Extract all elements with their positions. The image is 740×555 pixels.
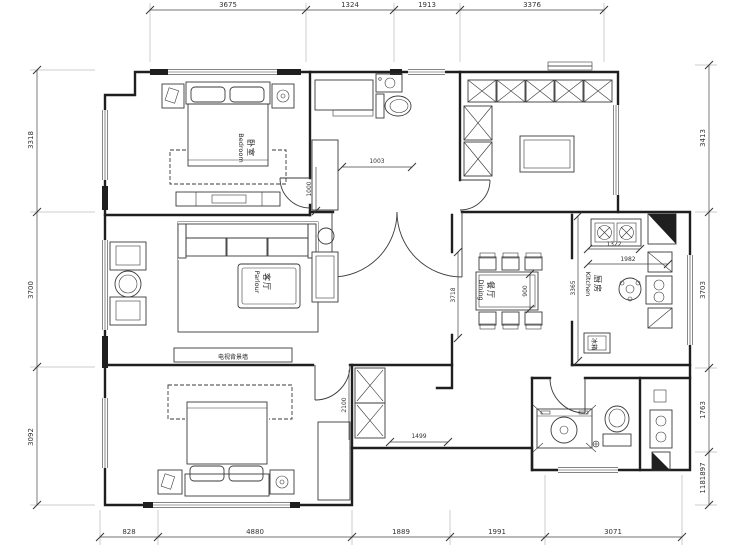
wall-pier (150, 69, 168, 75)
door-arc-topright-room (460, 180, 490, 210)
svg-text:3718: 3718 (450, 287, 457, 302)
tv-wall-label: 电视背景墙 (218, 353, 248, 361)
round-table-icon (115, 271, 141, 297)
armchair-icon (110, 242, 146, 270)
hall-cabinet-icon (355, 368, 385, 438)
dim-bottom-5: 3071 (604, 528, 622, 536)
dining-label: 餐厅 Dining (477, 280, 495, 301)
toilet-icon (603, 406, 631, 446)
svg-text:1982: 1982 (620, 256, 635, 263)
window-foyer-top (408, 68, 445, 76)
dim-table-w: 900 (522, 285, 529, 297)
window-kitchen-right (686, 255, 694, 345)
dim-kitchen-w2: 1982 (584, 256, 672, 268)
dimension-chain-left: 3318 3700 3092 (27, 66, 95, 509)
side-chair-icon (312, 252, 338, 302)
kitchen-label-zh: 厨房 (593, 275, 603, 293)
dimension-chain-bottom: 828 4880 1889 1991 3071 (96, 475, 686, 545)
sink-icon (646, 276, 672, 304)
bedroom-bottom (158, 365, 350, 500)
dim-table: 900 (522, 270, 534, 313)
fridge-label: 冰箱 (590, 338, 598, 350)
dim-right-1: 3413 (699, 129, 707, 147)
svg-text:1322: 1322 (606, 241, 621, 248)
dining-label-en: Dining (477, 280, 485, 301)
living-room: 客厅 Parlour 电视背景墙 (110, 222, 338, 362)
armchair-icon (110, 297, 146, 325)
basin-icon (619, 278, 641, 301)
dining-chairs-top (479, 253, 542, 270)
window-bedroom-top (165, 68, 283, 76)
kitchen: 冰箱 厨房 Kitchen 1322 1982 3365 (570, 212, 676, 365)
wall-pier (143, 502, 153, 508)
dim-top-1: 3675 (219, 1, 237, 9)
corner-shelf-icon (652, 452, 670, 470)
appliance-icon (648, 252, 672, 272)
living-label-zh: 客厅 (262, 273, 272, 291)
window-bath-bottom (558, 466, 618, 474)
entry-door-icons (332, 212, 462, 277)
wall-pier (102, 186, 108, 210)
dim-bottom-2: 4880 (246, 528, 264, 536)
dim-top-3: 1913 (418, 1, 436, 9)
wall-pier (102, 336, 108, 368)
nightstand-left-icon (162, 84, 184, 108)
closet-column-icon (464, 106, 492, 176)
wall-pier (290, 502, 300, 508)
dining-label-zh: 餐厅 (486, 281, 495, 299)
bedroom-top-label-en: Bedroom (237, 133, 245, 162)
cloakroom (464, 80, 612, 176)
nightstand-right-icon (272, 84, 294, 108)
dim-right-3: 1763 (699, 401, 707, 419)
washing-machine-icon (533, 405, 596, 452)
wardrobe-slat-icon (318, 422, 350, 500)
dim-foyer-w: 1003 (369, 158, 384, 165)
table-icon (520, 136, 574, 172)
dim-bottom-1: 828 (122, 528, 135, 536)
kitchen-label-en: Kitchen (584, 272, 592, 296)
door-arc-bathroom (550, 378, 585, 413)
svg-text:1499: 1499 (411, 433, 426, 440)
dim-top-2: 1324 (341, 1, 359, 9)
bedroom-top: 卧室 Bedroom (162, 82, 310, 208)
window-room-right (612, 105, 621, 195)
water-heater-icon (650, 390, 672, 448)
dim-foyer-h: 1000 (306, 181, 313, 196)
dim-bottom-3: 1889 (392, 528, 410, 536)
dim-dining-h: 3718 (450, 248, 462, 342)
wall-pier (277, 69, 301, 75)
dim-top-4: 3376 (523, 1, 541, 9)
window-left-2 (101, 240, 109, 330)
dim-right-2: 3703 (699, 281, 707, 299)
dim-left-1: 3318 (27, 131, 35, 149)
living-label: 客厅 Parlour (253, 271, 272, 294)
dining-chairs-bottom (479, 312, 542, 329)
bathroom (533, 378, 672, 470)
svg-text:冰箱: 冰箱 (590, 338, 598, 350)
floor-plan-page: 卧室 Bedroom 1003 1000 (0, 0, 740, 555)
dim-bottom-4: 1991 (488, 528, 506, 536)
window-ledge-topright (548, 62, 592, 70)
bed-icon (186, 82, 270, 166)
dim-kitchen-w1: 1322 (584, 241, 644, 253)
appliance-icon (648, 308, 672, 328)
window-left-3 (101, 398, 109, 468)
washbasin-icon (376, 74, 402, 92)
nightstand-right-icon (270, 470, 294, 494)
dimension-chain-right: 3413 3703 1763 1181897 (695, 61, 717, 509)
kitchen-label: 厨房 Kitchen (584, 272, 603, 296)
window-bottom-bedroom (148, 501, 298, 509)
dim-left-3: 3092 (27, 428, 35, 446)
toilet-icon (376, 94, 411, 118)
closet-row-icon (468, 80, 612, 102)
svg-text:2100: 2100 (341, 397, 348, 412)
svg-text:3365: 3365 (570, 280, 577, 295)
floor-drain-icon (593, 441, 599, 447)
dim-hall-h: 2100 (341, 370, 349, 440)
living-label-en: Parlour (253, 271, 261, 294)
vanity-counter-icon (315, 80, 373, 116)
sofa-icon (178, 222, 318, 260)
window-left-1 (101, 110, 109, 180)
hallway: 1499 2100 (341, 368, 452, 446)
dresser-icon (176, 192, 280, 206)
dimension-chain-top: 3675 1324 1913 3376 (146, 1, 608, 62)
floor-plan-svg: 卧室 Bedroom 1003 1000 (0, 0, 740, 555)
corner-counter-icon (648, 214, 676, 244)
dining-room: 餐厅 Dining 900 3718 (450, 248, 542, 342)
dim-right-4: 1181897 (699, 462, 707, 493)
dim-hall-w: 1499 (386, 433, 452, 446)
door-arc-bedroom-bottom (315, 365, 350, 400)
nightstand-left-icon (158, 470, 182, 494)
foyer-bath: 1003 1000 (306, 74, 490, 277)
dim-foyer: 1003 1000 (306, 158, 416, 215)
tv-wall-icon: 电视背景墙 (174, 348, 292, 362)
bed-icon (185, 400, 269, 496)
bedroom-top-label-zh: 卧室 (246, 139, 256, 157)
dim-left-2: 3700 (27, 281, 35, 299)
